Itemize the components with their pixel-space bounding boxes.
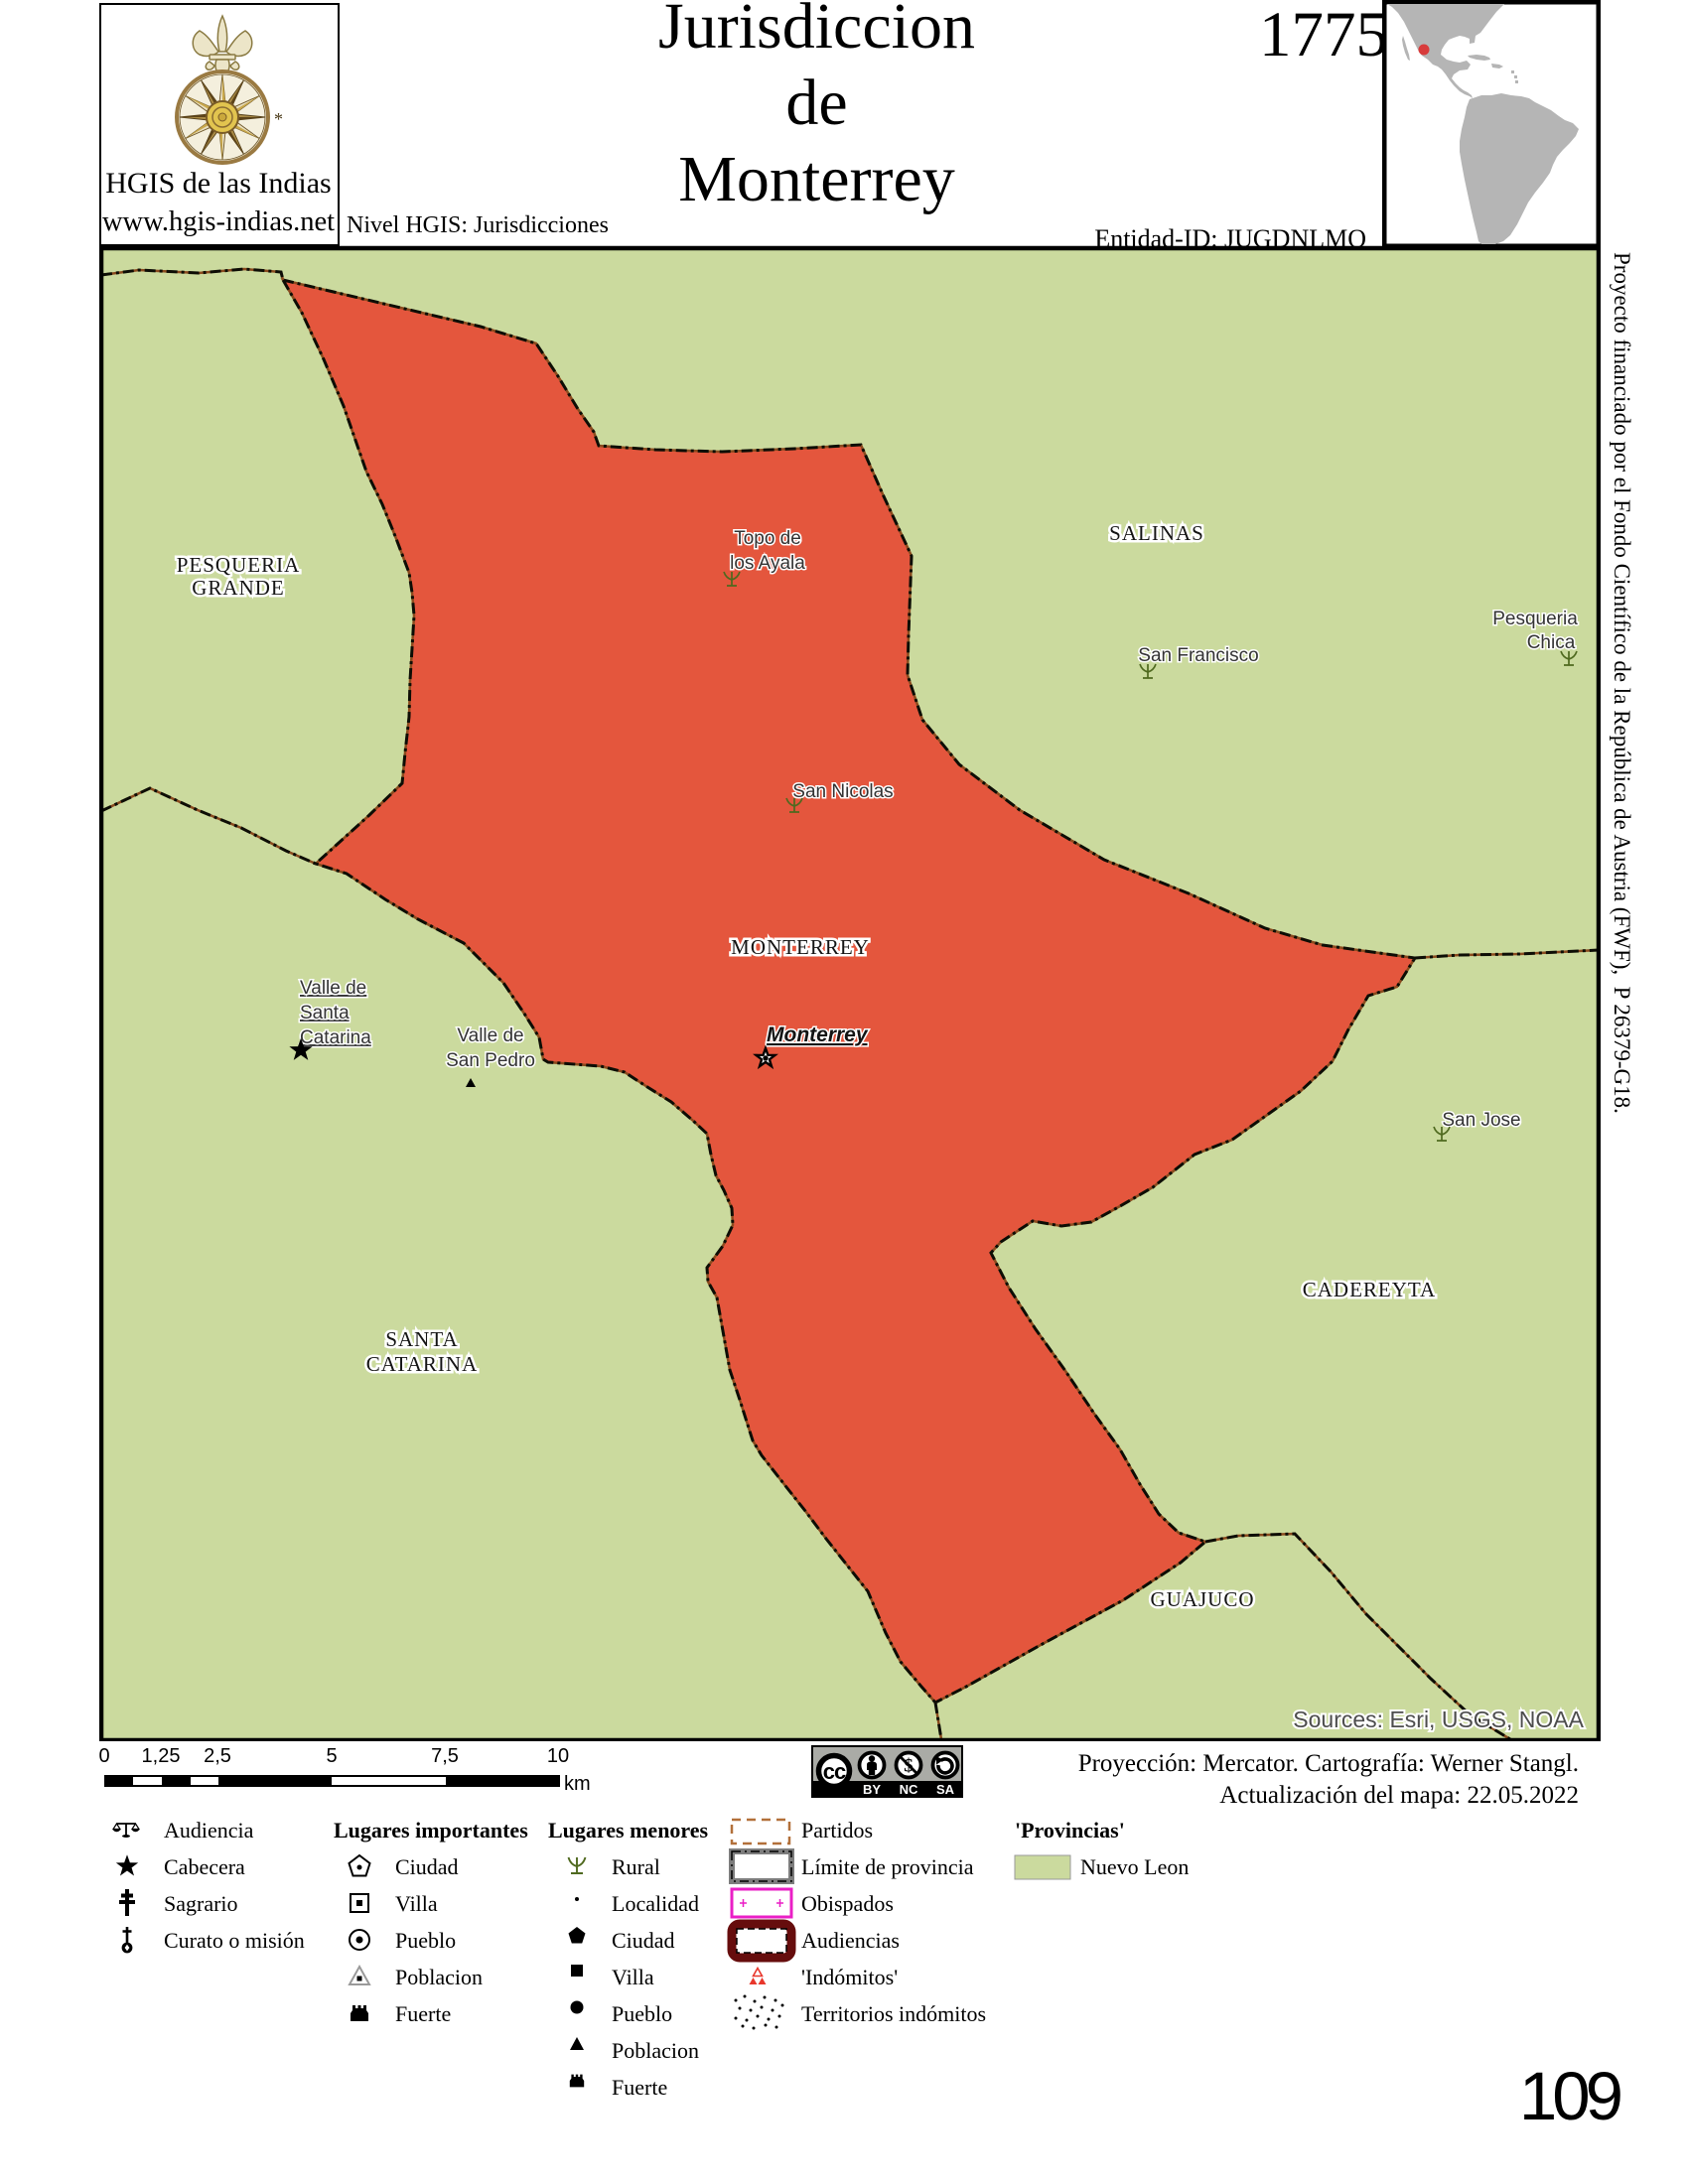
svg-text:Poblacion: Poblacion [612, 2038, 699, 2063]
svg-text:Curato o misión: Curato o misión [164, 1928, 305, 1953]
svg-text:NC: NC [900, 1782, 918, 1797]
svg-text:Santa: Santa [300, 1003, 350, 1024]
svg-text:Localidad: Localidad [612, 1891, 699, 1916]
svg-text:MONTERREY: MONTERREY [731, 935, 870, 959]
svg-text:San Nicolas: San Nicolas [792, 781, 893, 802]
svg-text:'Indómitos': 'Indómitos' [801, 1965, 898, 1989]
svg-text:Catarina: Catarina [300, 1027, 371, 1048]
svg-text:GUAJUCO: GUAJUCO [1150, 1587, 1254, 1611]
svg-text:Audiencias: Audiencias [801, 1928, 900, 1953]
svg-text:*: * [274, 109, 283, 129]
svg-text:Valle de: Valle de [457, 1025, 523, 1046]
svg-text:SANTA: SANTA [385, 1327, 458, 1351]
svg-text:Ciudad: Ciudad [395, 1854, 459, 1879]
svg-text:Villa: Villa [395, 1891, 438, 1916]
svg-text:PESQUERIA: PESQUERIA [177, 553, 301, 577]
svg-text:'Provincias': 'Provincias' [1015, 1818, 1125, 1843]
svg-text:Chica: Chica [1527, 632, 1576, 653]
svg-text:SA: SA [936, 1782, 955, 1797]
svg-text:BY: BY [863, 1782, 881, 1797]
svg-text:Obispados: Obispados [801, 1891, 894, 1916]
svg-text:SALINAS: SALINAS [1109, 521, 1204, 545]
svg-text:Villa: Villa [612, 1965, 654, 1989]
svg-text:Ciudad: Ciudad [612, 1928, 675, 1953]
svg-text:CADEREYTA: CADEREYTA [1303, 1278, 1436, 1301]
svg-text:Poblacion: Poblacion [395, 1965, 483, 1989]
svg-text:Topo de: Topo de [734, 528, 801, 549]
svg-text:Pesqueria: Pesqueria [1492, 609, 1578, 629]
svg-text:San Jose: San Jose [1442, 1110, 1520, 1131]
svg-text:Pueblo: Pueblo [395, 1928, 456, 1953]
svg-text:Límite de provincia: Límite de provincia [801, 1854, 974, 1879]
svg-text:Lugares menores: Lugares menores [548, 1818, 709, 1843]
svg-text:cc: cc [823, 1759, 846, 1784]
svg-text:Valle de: Valle de [300, 978, 366, 999]
svg-text:Nuevo Leon: Nuevo Leon [1080, 1854, 1189, 1879]
svg-text:Rural: Rural [612, 1854, 660, 1879]
svg-text:Fuerte: Fuerte [612, 2075, 667, 2100]
svg-text:Sagrario: Sagrario [164, 1891, 238, 1916]
svg-text:Pueblo: Pueblo [612, 2001, 672, 2026]
svg-text:GRANDE: GRANDE [192, 576, 285, 600]
svg-text:Monterrey: Monterrey [767, 1024, 869, 1046]
svg-text:los Ayala: los Ayala [730, 553, 805, 574]
svg-text:Fuerte: Fuerte [395, 2001, 451, 2026]
svg-text:Territorios indómitos: Territorios indómitos [801, 2001, 986, 2026]
svg-text:Lugares importantes: Lugares importantes [334, 1818, 528, 1843]
svg-text:Audiencia: Audiencia [164, 1818, 254, 1843]
svg-text:Sources: Esri, USGS, NOAA: Sources: Esri, USGS, NOAA [1293, 1706, 1584, 1732]
svg-text:Cabecera: Cabecera [164, 1854, 245, 1879]
svg-text:Partidos: Partidos [801, 1818, 873, 1843]
svg-text:CATARINA: CATARINA [366, 1352, 479, 1376]
svg-text:San Francisco: San Francisco [1138, 645, 1258, 666]
svg-text:San Pedro: San Pedro [446, 1050, 535, 1071]
